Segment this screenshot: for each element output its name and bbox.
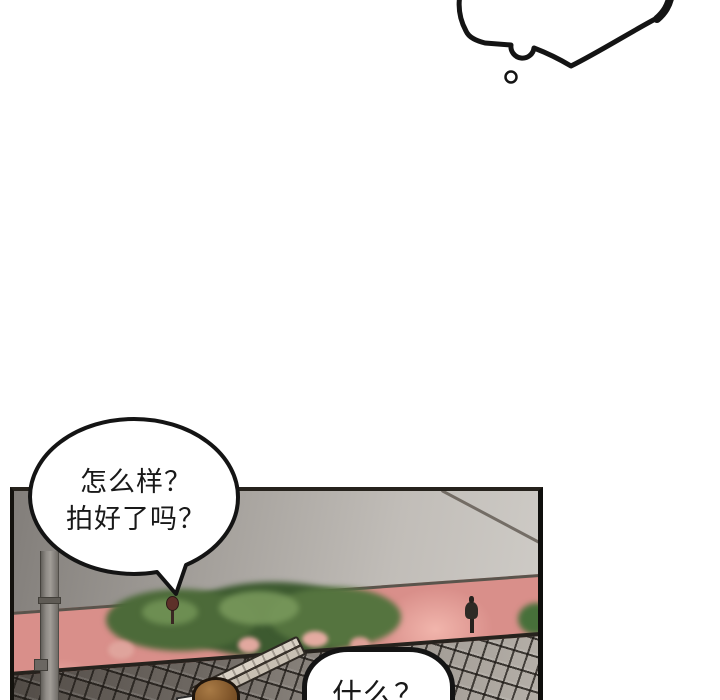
speech-bubble-bottom: 什么？ <box>302 647 455 700</box>
flower-cluster <box>108 641 134 659</box>
thought-bubble-dot <box>506 72 517 83</box>
flower-cluster <box>238 637 260 653</box>
flower-cluster <box>302 631 328 647</box>
speech-left-line-1: 怎么样？ <box>32 464 240 501</box>
street-lamp-pole <box>470 618 474 633</box>
speech-bubble-bottom-text: 什么？ <box>307 652 450 700</box>
comic-page: 怎么样？ 拍好了吗？ 什么？ <box>0 0 720 700</box>
thought-bubble-partial <box>430 0 690 100</box>
speech-left-line-2: 拍好了吗？ <box>32 501 240 538</box>
street-lamp-icon <box>465 602 478 619</box>
street-lamp-finial <box>469 596 474 603</box>
thought-bubble-outline <box>459 0 672 66</box>
utility-pole-clamp <box>34 659 48 671</box>
speech-bubble-left-text: 怎么样？ 拍好了吗？ <box>32 464 240 538</box>
